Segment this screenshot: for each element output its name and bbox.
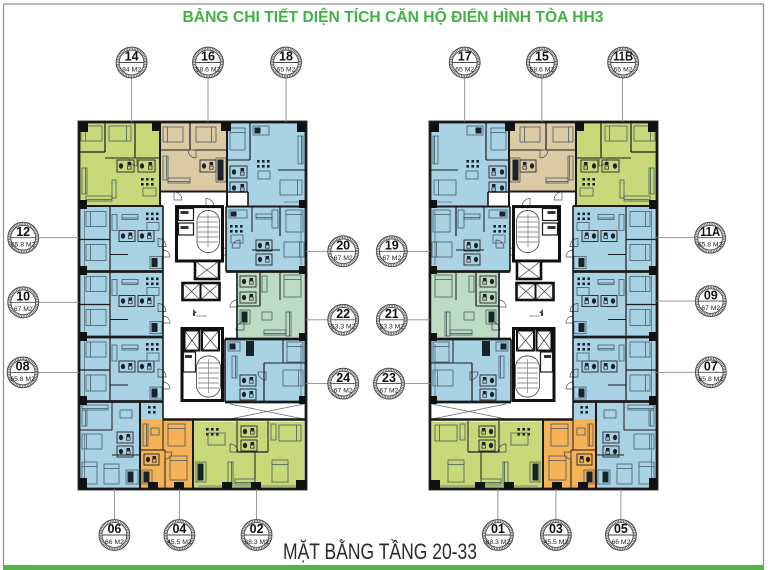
svg-text:65.8 M2: 65.8 M2 [10,376,35,383]
svg-text:45.5 M2: 45.5 M2 [167,539,192,546]
svg-text:84 M2: 84 M2 [122,66,141,73]
svg-text:65.8 M2: 65.8 M2 [699,376,724,383]
svg-text:12: 12 [16,225,30,239]
svg-text:18: 18 [279,50,293,64]
svg-text:01: 01 [491,522,505,536]
svg-text:20: 20 [336,239,350,253]
svg-text:03: 03 [549,522,563,536]
svg-text:58.6 M2: 58.6 M2 [196,66,221,73]
svg-text:88.3 M2: 88.3 M2 [244,539,269,546]
svg-text:15: 15 [535,50,549,64]
svg-text:14: 14 [125,50,139,64]
svg-text:53.3 M2: 53.3 M2 [331,324,356,331]
svg-text:05: 05 [614,522,628,536]
svg-text:45.5 M2: 45.5 M2 [544,539,569,546]
svg-text:65 M2: 65 M2 [277,66,296,73]
svg-text:67 M2: 67 M2 [334,255,353,262]
svg-text:21: 21 [385,307,399,321]
svg-text:58.6 M2: 58.6 M2 [530,66,555,73]
svg-text:17: 17 [458,50,472,64]
svg-text:67 M2: 67 M2 [701,305,720,312]
svg-text:04: 04 [172,522,186,536]
svg-text:67 M2: 67 M2 [334,387,353,394]
svg-text:09: 09 [704,288,718,302]
svg-text:65.8 M2: 65.8 M2 [11,242,36,249]
svg-text:16: 16 [201,50,215,64]
svg-text:07: 07 [704,360,718,374]
svg-text:24: 24 [336,371,350,385]
svg-text:65 M2: 65 M2 [455,66,474,73]
svg-text:BẢNG CHI TIẾT DIỆN TÍCH CĂN HỘ: BẢNG CHI TIẾT DIỆN TÍCH CĂN HỘ ĐIỂN HÌNH… [183,7,604,26]
svg-text:08: 08 [16,360,30,374]
svg-text:23: 23 [382,371,396,385]
svg-text:67 M2: 67 M2 [380,387,399,394]
svg-text:11A: 11A [700,225,720,239]
svg-text:66 M2: 66 M2 [105,539,124,546]
svg-text:19: 19 [385,239,399,253]
svg-text:65 M2: 65 M2 [614,66,633,73]
svg-text:22: 22 [336,307,350,321]
svg-text:67 M2: 67 M2 [14,306,33,313]
svg-text:11B: 11B [613,50,633,64]
svg-text:10: 10 [16,290,30,304]
svg-text:06: 06 [107,522,121,536]
svg-text:88.3 M2: 88.3 M2 [486,539,511,546]
svg-text:65.8 M2: 65.8 M2 [698,242,723,249]
svg-text:53.3 M2: 53.3 M2 [380,324,405,331]
svg-text:66 M2: 66 M2 [611,539,630,546]
svg-text:67 M2: 67 M2 [382,255,401,262]
svg-text:MẶT BẰNG TẦNG 20-33: MẶT BẰNG TẦNG 20-33 [283,539,477,564]
svg-text:02: 02 [250,522,264,536]
